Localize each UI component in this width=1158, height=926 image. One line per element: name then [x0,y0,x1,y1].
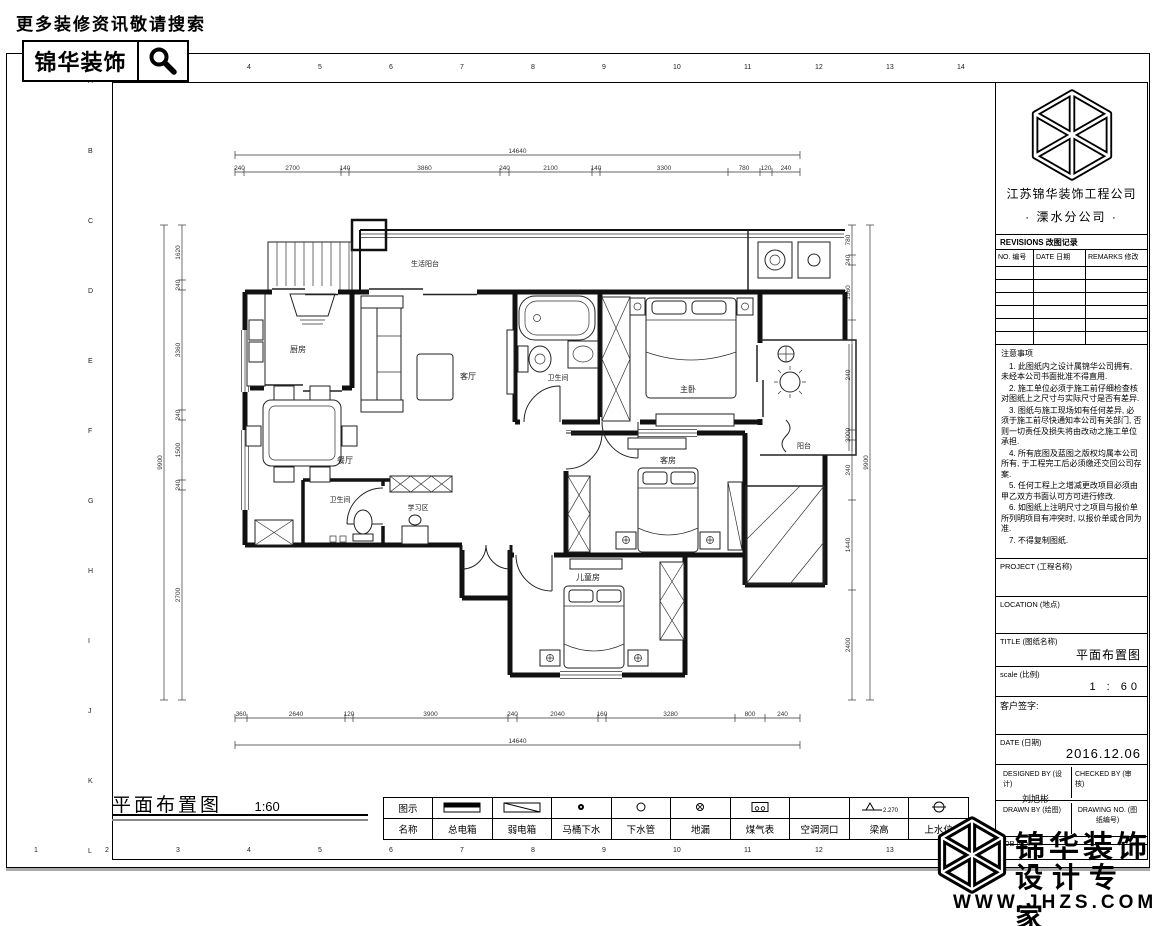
revision-cell [1086,267,1147,279]
room-label: 学习区 [408,503,429,512]
legend-name-row: 名称 总电箱 弱电箱 马桶下水 下水管 地漏 煤气表 空调洞口 梁高 上水位 [384,819,969,840]
title-label: TITLE (图纸名称) [1000,637,1058,646]
checked-cell: CHECKED BY (审核) [1072,767,1143,798]
legend-name: 地漏 [671,819,731,840]
dimension-label: 1620 [175,245,182,260]
checked-label: CHECKED BY (审核) [1075,769,1140,789]
frame-grid-label: 7 [460,64,464,72]
plan-title: 平面布置图 1:60 [112,790,372,817]
dimension-label: 140 [340,165,351,172]
frame-grid-label: 1 [34,847,38,855]
dimension-label: 240 [845,464,852,475]
title-block: 江苏锦华装饰工程公司 · 溧水分公司 · REVISIONS 改图记录 NO. … [995,82,1148,845]
frame-grid-label: 6 [389,847,393,855]
revision-cell [1086,319,1147,331]
revisions-header: NO. 编号 DATE 日期 REMARKS 修改 [996,250,1147,267]
dimension-label: 3000 [845,427,852,442]
legend-symbol-drain-pipe [611,798,671,819]
coffee-table [417,354,453,400]
room-label: 卫生间 [548,373,569,382]
project-label: PROJECT (工程名称) [1000,562,1072,571]
client-sign-cell: 客户签字: [996,697,1147,735]
frame-grid-label: 9 [602,847,606,855]
project-cell: PROJECT (工程名称) [996,559,1147,597]
dimension-label: 240 [234,165,245,172]
revisions-body [996,267,1147,345]
frame-grid-label: 12 [815,64,823,72]
note-line: 7. 不得复制图纸. [1001,536,1142,547]
frame-grid-label: C [88,218,93,226]
revision-cell [1034,267,1086,279]
plant-vine [782,420,790,452]
washbasin [568,341,598,368]
legend-symbol-main-electric-box [433,798,493,819]
sofa-back [361,296,377,412]
frame-grid-label: 5 [318,64,322,72]
revision-row [996,267,1147,280]
dimension-label: 9900 [157,455,164,470]
frame-grid-label: 10 [673,847,681,855]
floor-plan: 14640 2402700140386024021001403300780120… [140,130,900,780]
dimension-label: 3860 [417,165,432,172]
legend-table: 图示 2.270 名称 总电箱 弱电箱 马桶下水 下 [383,797,969,840]
frame-grid-label: 13 [886,847,894,855]
legend-name: 弱电箱 [492,819,552,840]
revisions-col-no: NO. 编号 [996,250,1034,266]
frame-grid-label: 7 [460,847,464,855]
revision-cell [996,267,1034,279]
dimension-label: 120 [344,711,355,718]
frame-grid-label: 4 [247,64,251,72]
master-wardrobe [602,297,630,421]
legend-symbol-floor-drain [671,798,731,819]
footer-brand-line2: 设计专家 [1015,856,1158,926]
frame-grid-label: 6 [389,64,393,72]
dimension-label: 2100 [543,165,558,172]
scale-label: scale (比例) [1000,670,1040,679]
footer-cube-logo [933,816,1011,894]
legend-name: 马桶下水 [552,819,612,840]
frame-grid-label: 12 [815,847,823,855]
note-line: 6. 如图纸上注明尺寸之项目与报价单所列明项目有冲突时, 以报价单或合同为准. [1001,503,1142,535]
dimension-label: 14640 [508,738,526,745]
legend-name: 总电箱 [433,819,493,840]
search-hint-text: 更多装修资讯敬请搜索 [16,10,206,35]
frame-grid-label: 3 [176,847,180,855]
dimension-label: 2700 [285,165,300,172]
frame-grid-label: 2 [105,847,109,855]
potted-plant [780,372,800,392]
company-logo-cell: 江苏锦华装饰工程公司 · 溧水分公司 · [996,83,1147,235]
desk [402,526,428,544]
toilet-tank [353,534,373,541]
legend-name: 下水管 [611,819,671,840]
frame-grid-label: 14 [957,64,965,72]
title-underline [112,814,368,816]
dimension-label: 2400 [845,637,852,652]
title-underline-shadow [112,819,368,821]
dimension-label: 240 [175,279,182,290]
revision-row [996,280,1147,293]
closet-block [746,486,824,584]
footer-url: WWW.JHZS.COM [953,892,1157,914]
master-bedroom [630,298,753,426]
room-label: 客房 [660,455,676,465]
frame-grid-label: D [88,288,93,296]
dimension-label: 240 [845,369,852,380]
pillow [643,472,667,484]
duct-shaft [352,220,386,250]
dimension-label: 800 [745,711,756,718]
washing-machine [758,242,792,278]
frame-grid-label: 8 [531,64,535,72]
revision-cell [1034,280,1086,292]
legend-header-name: 名称 [384,819,433,840]
revision-cell [1034,306,1086,318]
kids-bedroom [540,559,684,668]
revisions-col-remarks: REMARKS 修改 [1086,250,1147,266]
company-cube-logo [1024,87,1120,183]
room-label: 主卧 [680,384,696,394]
dimension-label: 9900 [863,455,870,470]
frame-grid-label: E [88,358,93,366]
scale-cell: scale (比例) 1 : 60 [996,667,1147,697]
frame-grid-label: K [88,778,93,786]
dining-table [263,400,341,466]
dimension-label: 3900 [423,711,438,718]
dimension-bottom-total: 14640 [235,738,800,749]
main-bathroom [518,296,598,372]
frame-grid-label: J [88,708,92,716]
room-label: 阳台 [797,441,811,450]
revision-cell [1086,293,1147,305]
dimension-label: 1440 [845,537,852,552]
dimension-label: 2700 [175,587,182,602]
kitchen-fixtures [247,294,335,386]
legend-symbol-weak-electric-box [492,798,552,819]
tv-bench [656,414,734,426]
revision-cell [1086,332,1147,344]
search-icon [137,42,187,80]
room-label: 厨房 [290,344,306,354]
dresser [570,559,622,569]
room-label: 卫生间 [330,495,351,504]
pillow [671,472,695,484]
frame-grid-label: H [88,568,93,576]
legend-name: 空调洞口 [790,819,850,840]
revision-row [996,332,1147,345]
pillow [569,590,593,602]
revision-cell [996,280,1034,292]
dimension-label: 2640 [289,711,304,718]
room-label: 生活阳台 [411,259,439,268]
toilet-bowl [529,346,551,372]
right-balcony [760,340,856,455]
note-line: 4. 所有底图及蓝图之版权均属本公司所有, 于工程完工后必须缴还交回公司存案. [1001,449,1142,481]
date-value: 2016.12.06 [1066,746,1141,761]
room-label: 餐厅 [337,456,353,465]
legend-symbol-gas-meter [730,798,790,819]
pillow [597,590,621,602]
frame-grid-label: B [88,148,93,156]
company-branch: · 溧水分公司 · [1000,208,1143,225]
sofa-seat [377,300,401,408]
bath-walls [303,480,390,545]
dimension-label: 780 [845,234,852,245]
client-sign-label: 客户签字: [1000,701,1039,711]
footer-brand: 锦华装饰 设计专家 WWW.JHZS.COM [933,810,1158,926]
toilet-tank [518,346,528,372]
legend-name: 梁高 [849,819,909,840]
frame-grid-label: I [88,638,90,646]
dining-set [246,386,357,482]
dimension-chain-left: 1620240336024015002402700 [175,225,186,700]
chair [409,515,421,525]
scale-value: 1 : 60 [1089,681,1141,693]
date-label: DATE (日期) [1000,738,1042,747]
title-cell: TITLE (图纸名称) 平面布置图 [996,634,1147,667]
dresser [628,438,686,449]
legend-header-symbol: 图示 [384,798,433,819]
range-hood [290,294,335,316]
revision-cell [996,306,1034,318]
revision-cell [1034,293,1086,305]
revision-cell [1034,319,1086,331]
note-line: 1. 此图纸内之设计属锦华公司拥有, 未经本公司书面批准不得直用. [1001,362,1142,383]
frame-grid-label: G [88,498,93,506]
pillow [692,301,726,314]
legend-name: 煤气表 [730,819,790,840]
company-name: 江苏锦华装饰工程公司 [1000,185,1143,202]
revision-cell [1034,332,1086,344]
revision-cell [1086,306,1147,318]
dimension-label: 240 [781,165,792,172]
dimension-label: 240 [175,409,182,420]
dimension-label: 240 [175,479,182,490]
plan-title-text: 平面布置图 [112,790,222,817]
dimension-label: 160 [597,711,608,718]
svg-text:2.270: 2.270 [883,808,899,814]
room-label: 客厅 [460,371,476,381]
dimension-top-total: 14640 [235,148,800,159]
wardrobe [660,562,684,640]
revisions-title: REVISIONS 改图记录 [996,235,1147,250]
dimension-label: 3360 [175,342,182,357]
laundry-sink [798,242,830,278]
dimension-label: 3280 [663,711,678,718]
frame-grid-label: 8 [531,847,535,855]
dimension-chain-bottom: 3602640120390024020401603280800240 [235,711,800,722]
balcony-laundry [352,220,845,292]
location-label: LOCATION (地点) [1000,600,1060,609]
dimension-label: 140 [591,165,602,172]
notes-title: 注意事项 [1001,349,1142,360]
toilet-bowl [354,510,372,534]
dimension-label: 240 [499,165,510,172]
legend-symbol-ac-opening [790,798,850,819]
dimension-label: 2040 [550,711,565,718]
title-value: 平面布置图 [1076,646,1141,663]
living-furniture [361,296,514,412]
wardrobe [568,476,590,552]
nightstand [737,298,753,315]
notes-cell: 注意事项 1. 此图纸内之设计属锦华公司拥有, 未经本公司书面批准不得直用. 2… [996,345,1147,559]
frame-grid-label: 5 [318,847,322,855]
brand-name: 锦华装饰 [24,42,137,80]
date-cell: DATE (日期) 2016.12.06 [996,735,1147,765]
dimension-label: 240 [777,711,788,718]
dimension-label: 240 [845,254,852,265]
dimension-label: 360 [236,711,247,718]
dimension-label: 3300 [657,165,672,172]
revisions-col-date: DATE 日期 [1034,250,1086,266]
frame-grid-label: 10 [673,64,681,72]
frame-grid-label: F [88,428,92,436]
drawing-sheet: 更多装修资讯敬请搜索 锦华装饰 14640 240270014038602402… [0,0,1158,926]
revision-cell [1086,280,1147,292]
tv-cabinet [507,330,514,394]
brand-box: 锦华装饰 [22,40,189,82]
designed-checked-row: DESIGNED BY (设计) 刘旭彬 CHECKED BY (审核) [996,765,1147,801]
dimension-right-total: 9900 [863,225,874,700]
frame-grid-label: 4 [247,847,251,855]
dimension-label: 1500 [175,442,182,457]
legend-symbol-row: 图示 2.270 [384,798,969,819]
dimension-chain-top: 2402700140386024021001403300780120240 [234,165,800,176]
revision-row [996,319,1147,332]
dimension-label: 780 [739,165,750,172]
revision-row [996,306,1147,319]
revision-cell [996,319,1034,331]
dimension-label: 240 [507,711,518,718]
frame-grid-label: 11 [744,64,751,72]
frame-grid-label: 13 [886,64,894,72]
nightstand [630,298,645,315]
frame-grid-label: L [88,848,92,856]
note-line: 2. 施工单位必须于施工前仔细检查核对图纸上之尺寸与实际尺寸是否有差异. [1001,384,1142,405]
location-cell: LOCATION (地点) [996,597,1147,634]
dimension-label: 120 [761,165,772,172]
legend-symbol-toilet-drain [552,798,612,819]
dimension-left-total: 9900 [157,225,168,700]
revision-row [996,293,1147,306]
designed-cell: DESIGNED BY (设计) 刘旭彬 [1000,767,1072,798]
stairs [268,242,352,292]
dimension-label: 14640 [508,148,526,155]
frame-grid-label: 11 [744,847,751,855]
note-line: 5. 任何工程上之增减更改项目必须由甲乙双方书面认可方可进行修改. [1001,481,1142,502]
plan-scale-text: 1:60 [254,799,279,814]
revision-cell [996,293,1034,305]
room-label: 儿童房 [576,572,600,582]
note-line: 3. 图纸与施工现场如有任何差异, 必须于施工前尽快通知本公司有关部门, 否则一… [1001,406,1142,448]
legend-symbol-beam-height: 2.270 [849,798,909,819]
pillow [652,301,686,314]
revision-cell [996,332,1034,344]
designed-label: DESIGNED BY (设计) [1003,769,1068,789]
frame-grid-label: 9 [602,64,606,72]
